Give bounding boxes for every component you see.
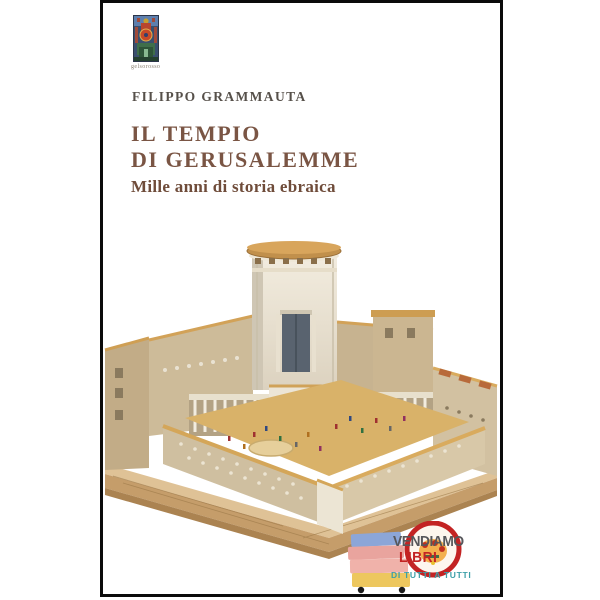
temple-model-photo	[103, 218, 500, 566]
book-title: IL TEMPIO DI GERUSALEMME	[131, 121, 359, 173]
sticker-word-vendiamo: VENDIAMO	[393, 533, 464, 550]
product-image-canvas: gelsorosso FILIPPO GRAMMAUTA IL TEMPIO D…	[0, 0, 600, 600]
publisher-name: gelsorosso	[131, 64, 160, 70]
publisher-logo-icon	[133, 15, 159, 62]
sticker-word-di-tutti-a-tutti: DI TUTTI A TUTTI	[391, 570, 471, 580]
book-cover: gelsorosso FILIPPO GRAMMAUTA IL TEMPIO D…	[100, 0, 503, 597]
book-subtitle: Mille anni di storia ebraica	[131, 177, 336, 197]
author-name: FILIPPO GRAMMAUTA	[132, 89, 307, 105]
seller-sticker: VENDIAMO LIBRI DI TUTTI A TUTTI	[347, 521, 497, 595]
sticker-word-libri: LIBRI	[399, 549, 437, 566]
